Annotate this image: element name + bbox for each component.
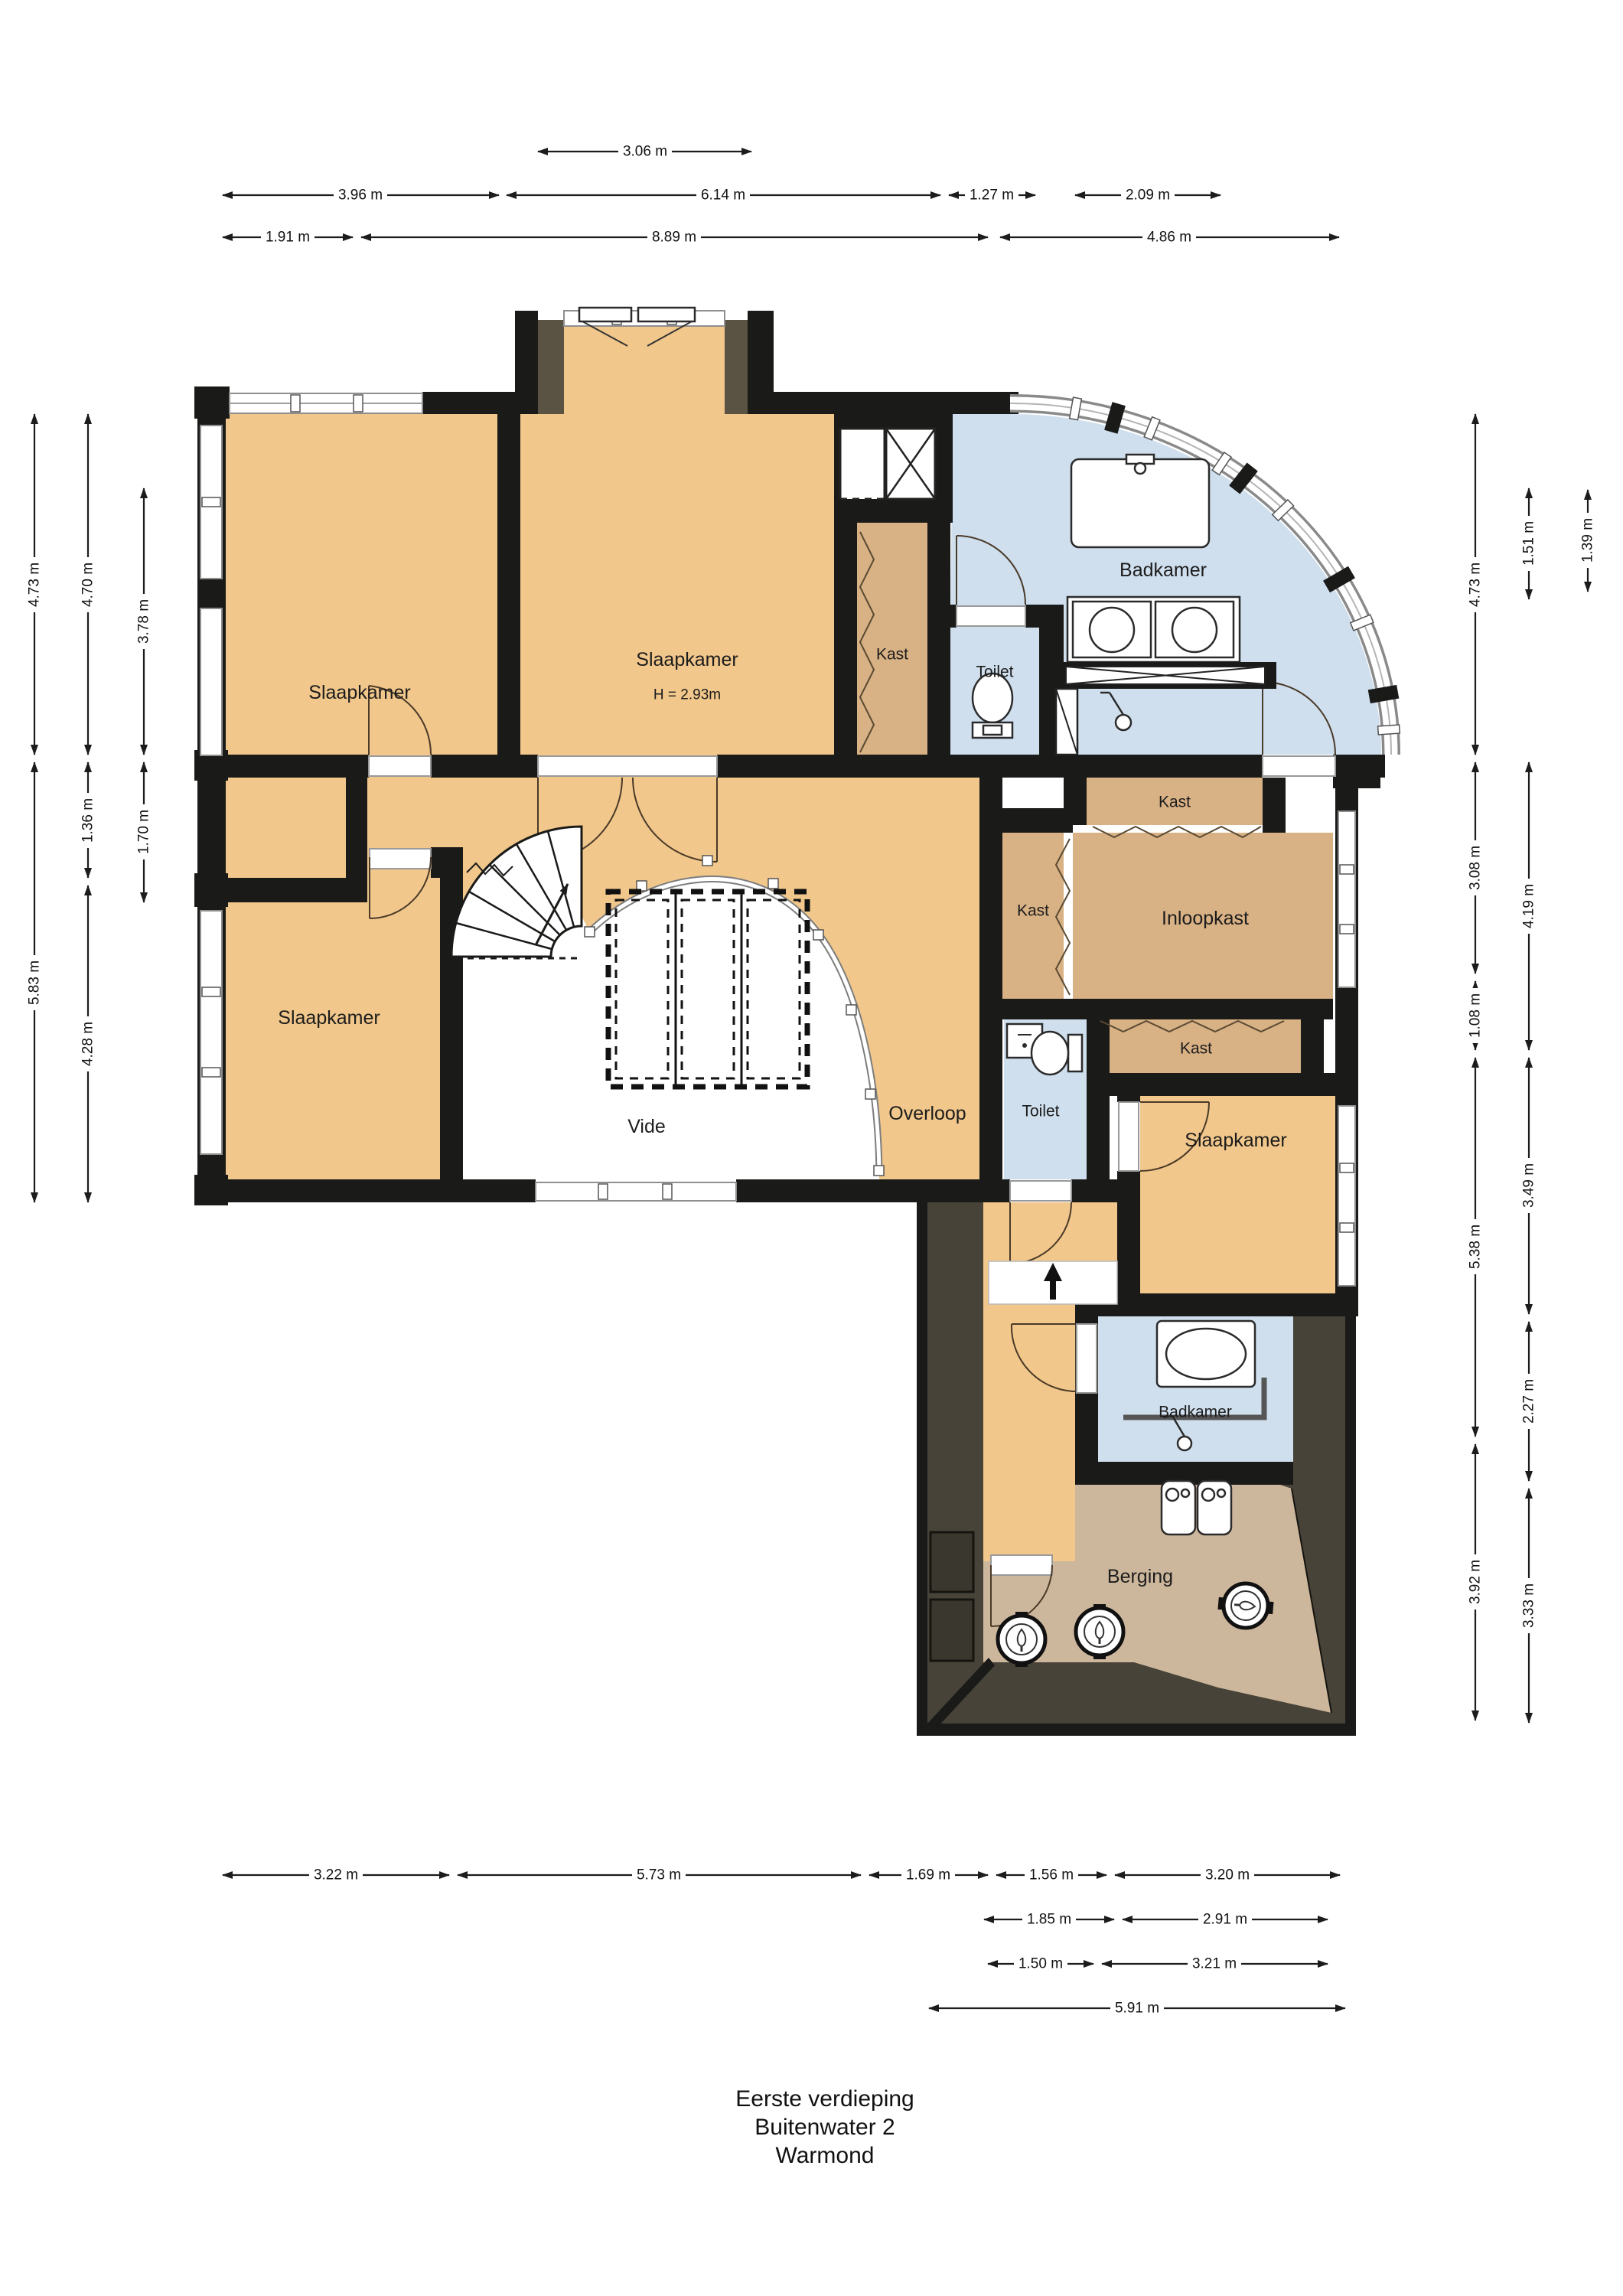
svg-text:3.78 m: 3.78 m: [136, 599, 152, 644]
dim-left-1_36: 1.36 m: [78, 762, 98, 878]
dim-top-1_27: 1.27 m: [949, 187, 1035, 204]
dim-bottom-2_91: 2.91 m: [1123, 1911, 1328, 1928]
svg-text:1.70 m: 1.70 m: [136, 810, 152, 854]
dim-right-3_08: 3.08 m: [1465, 762, 1485, 974]
dim-top-8_89: 8.89 m: [361, 229, 988, 246]
dim-left-3_78: 3.78 m: [134, 488, 154, 755]
svg-text:4.70 m: 4.70 m: [80, 563, 96, 607]
dim-top-3_06: 3.06 m: [538, 143, 751, 160]
svg-text:4.19 m: 4.19 m: [1521, 884, 1537, 928]
dim-top-3_96: 3.96 m: [223, 187, 499, 204]
room-label-kast-n: Kast: [1159, 794, 1191, 811]
room-label-slaapkamer-n: Slaapkamer: [636, 649, 738, 670]
wc-toilet-n: [973, 673, 1012, 738]
room-label-kast-wand: Kast: [876, 646, 908, 664]
plan-title-line1: Eerste verdieping: [735, 2086, 914, 2112]
floorplan-svg: Slaapkamer Slaapkamer H = 2.93m Badkamer…: [0, 0, 1623, 2296]
dim-top-2_09: 2.09 m: [1075, 187, 1221, 204]
svg-text:3.21 m: 3.21 m: [1192, 1956, 1237, 1972]
bathtub-n: [1071, 455, 1209, 547]
wc-toilet-s: [1031, 1032, 1082, 1075]
dim-left-4_70: 4.70 m: [78, 414, 98, 755]
dim-right-3_49: 3.49 m: [1519, 1058, 1539, 1314]
svg-text:1.91 m: 1.91 m: [266, 230, 310, 246]
dim-left-4_28: 4.28 m: [78, 885, 98, 1202]
svg-text:1.39 m: 1.39 m: [1580, 518, 1596, 563]
dim-left-1_70: 1.70 m: [134, 762, 154, 902]
dim-bottom-3_20: 3.20 m: [1115, 1867, 1340, 1883]
svg-text:4.73 m: 4.73 m: [27, 563, 43, 607]
svg-text:3.49 m: 3.49 m: [1521, 1163, 1537, 1208]
svg-text:3.08 m: 3.08 m: [1468, 846, 1484, 890]
svg-text:2.91 m: 2.91 m: [1203, 1912, 1247, 1928]
room-label-overloop: Overloop: [888, 1103, 966, 1124]
dim-right-4_73: 4.73 m: [1465, 414, 1485, 755]
washer-1: [998, 1612, 1045, 1667]
svg-text:4.73 m: 4.73 m: [1468, 563, 1484, 607]
room-label-slaapkamer-n-height: H = 2.93m: [653, 687, 721, 703]
svg-text:1.50 m: 1.50 m: [1018, 1956, 1063, 1972]
dim-bottom-3_21: 3.21 m: [1102, 1955, 1328, 1972]
dim-right-1_51: 1.51 m: [1519, 488, 1539, 599]
room-label-badkamer-s: Badkamer: [1159, 1404, 1232, 1421]
dim-left-4_73: 4.73 m: [24, 414, 44, 755]
room-label-berging: Berging: [1107, 1566, 1173, 1587]
dim-top-4_86: 4.86 m: [1000, 229, 1339, 246]
plan-title: Eerste verdieping Buitenwater 2 Warmond: [735, 2086, 914, 2168]
room-slaapkamer-nw-floor: [226, 414, 497, 778]
dim-right-1_39: 1.39 m: [1578, 490, 1598, 592]
dim-left-5_83: 5.83 m: [24, 762, 44, 1202]
room-label-slaapkamer-nw: Slaapkamer: [308, 682, 410, 703]
svg-text:6.14 m: 6.14 m: [701, 188, 745, 204]
room-slaapkamer-se-floor: [1140, 1096, 1335, 1293]
dim-right-3_92: 3.92 m: [1465, 1444, 1485, 1720]
double-sink-counter: [1067, 597, 1240, 662]
dim-right-3_33: 3.33 m: [1519, 1489, 1539, 1723]
room-label-badkamer-n: Badkamer: [1119, 559, 1207, 581]
svg-text:5.83 m: 5.83 m: [27, 960, 43, 1005]
svg-text:3.22 m: 3.22 m: [314, 1867, 358, 1883]
floorplan-page: Slaapkamer Slaapkamer H = 2.93m Badkamer…: [0, 0, 1623, 2296]
dim-bottom-5_73: 5.73 m: [458, 1867, 861, 1883]
svg-text:1.51 m: 1.51 m: [1521, 521, 1537, 566]
shaft-boxes: [840, 429, 935, 499]
dim-top-1_91: 1.91 m: [223, 229, 353, 246]
room-label-kast-w: Kast: [1017, 902, 1049, 920]
svg-text:5.91 m: 5.91 m: [1115, 2001, 1159, 2017]
dim-bottom-1_56: 1.56 m: [996, 1867, 1106, 1883]
svg-text:3.33 m: 3.33 m: [1521, 1583, 1537, 1628]
room-label-slaapkamer-sw: Slaapkamer: [278, 1007, 380, 1029]
bathtub-s: [1157, 1321, 1255, 1387]
svg-text:4.86 m: 4.86 m: [1147, 230, 1191, 246]
svg-text:3.20 m: 3.20 m: [1205, 1867, 1250, 1883]
room-label-toilet-n: Toilet: [976, 664, 1013, 681]
room-label-slaapkamer-se: Slaapkamer: [1185, 1130, 1286, 1151]
room-kast-wand-floor: [857, 523, 927, 755]
dim-bottom-1_69: 1.69 m: [869, 1867, 988, 1883]
svg-text:4.28 m: 4.28 m: [80, 1022, 96, 1066]
plan-title-line2: Buitenwater 2: [754, 2115, 895, 2140]
svg-text:1.69 m: 1.69 m: [906, 1867, 950, 1883]
svg-text:1.56 m: 1.56 m: [1029, 1867, 1074, 1883]
dim-right-2_27: 2.27 m: [1519, 1322, 1539, 1481]
skylight-box-1: [930, 1532, 973, 1592]
dim-bottom-3_22: 3.22 m: [223, 1867, 449, 1883]
dim-bottom-5_91: 5.91 m: [929, 2000, 1345, 2017]
svg-text:1.27 m: 1.27 m: [970, 188, 1014, 204]
dim-right-1_08: 1.08 m: [1465, 981, 1485, 1050]
svg-text:3.92 m: 3.92 m: [1468, 1560, 1484, 1604]
svg-text:5.73 m: 5.73 m: [637, 1867, 681, 1883]
bay-window-floor: [564, 327, 725, 419]
svg-text:3.96 m: 3.96 m: [338, 188, 383, 204]
room-label-kast-s: Kast: [1180, 1040, 1212, 1058]
svg-text:5.38 m: 5.38 m: [1468, 1225, 1484, 1269]
skylight-box-2: [930, 1600, 973, 1661]
dim-bottom-1_50: 1.50 m: [988, 1955, 1093, 1972]
room-label-inloopkast: Inloopkast: [1162, 908, 1249, 929]
svg-text:2.27 m: 2.27 m: [1521, 1379, 1537, 1424]
svg-text:3.06 m: 3.06 m: [623, 144, 667, 160]
svg-text:1.36 m: 1.36 m: [80, 798, 96, 843]
washer-2: [1076, 1604, 1123, 1659]
svg-text:8.89 m: 8.89 m: [652, 230, 696, 246]
svg-text:2.09 m: 2.09 m: [1126, 188, 1170, 204]
dim-right-5_38: 5.38 m: [1465, 1058, 1485, 1437]
room-slaapkamer-n-floor: [520, 414, 834, 778]
room-label-vide: Vide: [627, 1116, 666, 1137]
svg-text:1.85 m: 1.85 m: [1027, 1912, 1071, 1928]
level-arrow: [989, 1261, 1117, 1304]
dim-top-6_14: 6.14 m: [507, 187, 940, 204]
room-label-toilet-s: Toilet: [1022, 1103, 1059, 1120]
plan-title-line3: Warmond: [776, 2143, 875, 2168]
dim-bottom-1_85: 1.85 m: [984, 1911, 1114, 1928]
dim-right-4_19: 4.19 m: [1519, 762, 1539, 1050]
svg-text:1.08 m: 1.08 m: [1468, 993, 1484, 1038]
